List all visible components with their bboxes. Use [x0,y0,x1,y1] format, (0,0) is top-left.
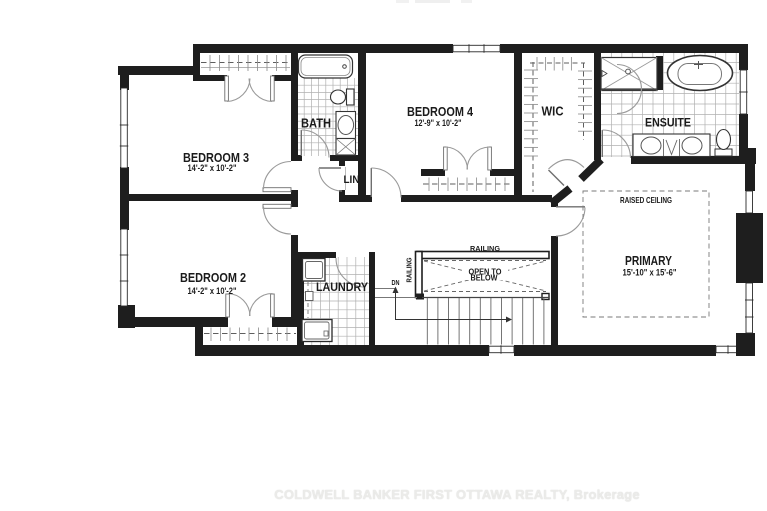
svg-text:RAILING: RAILING [407,257,414,282]
svg-text:BEDROOM 2: BEDROOM 2 [180,271,246,285]
svg-text:RAILING: RAILING [470,246,501,253]
svg-text:14'-2" x 10'-2": 14'-2" x 10'-2" [188,286,237,296]
svg-text:12'-9" x 10'-2": 12'-9" x 10'-2" [415,118,462,128]
svg-text:BATH: BATH [301,117,331,131]
svg-text:LIN: LIN [344,174,360,186]
svg-text:RAISED CEILING: RAISED CEILING [620,195,672,205]
svg-text:BELOW: BELOW [471,274,498,283]
svg-text:DN: DN [392,278,400,287]
svg-text:LAUNDRY: LAUNDRY [316,280,368,294]
svg-text:15'-10" x 15'-6": 15'-10" x 15'-6" [623,268,677,278]
svg-text:14'-2" x 10'-2": 14'-2" x 10'-2" [188,163,237,173]
svg-text:WIC: WIC [542,105,564,119]
svg-text:ENSUITE: ENSUITE [645,116,691,130]
svg-text:PRIMARY: PRIMARY [625,254,673,268]
svg-text:BEDROOM 4: BEDROOM 4 [407,105,473,119]
